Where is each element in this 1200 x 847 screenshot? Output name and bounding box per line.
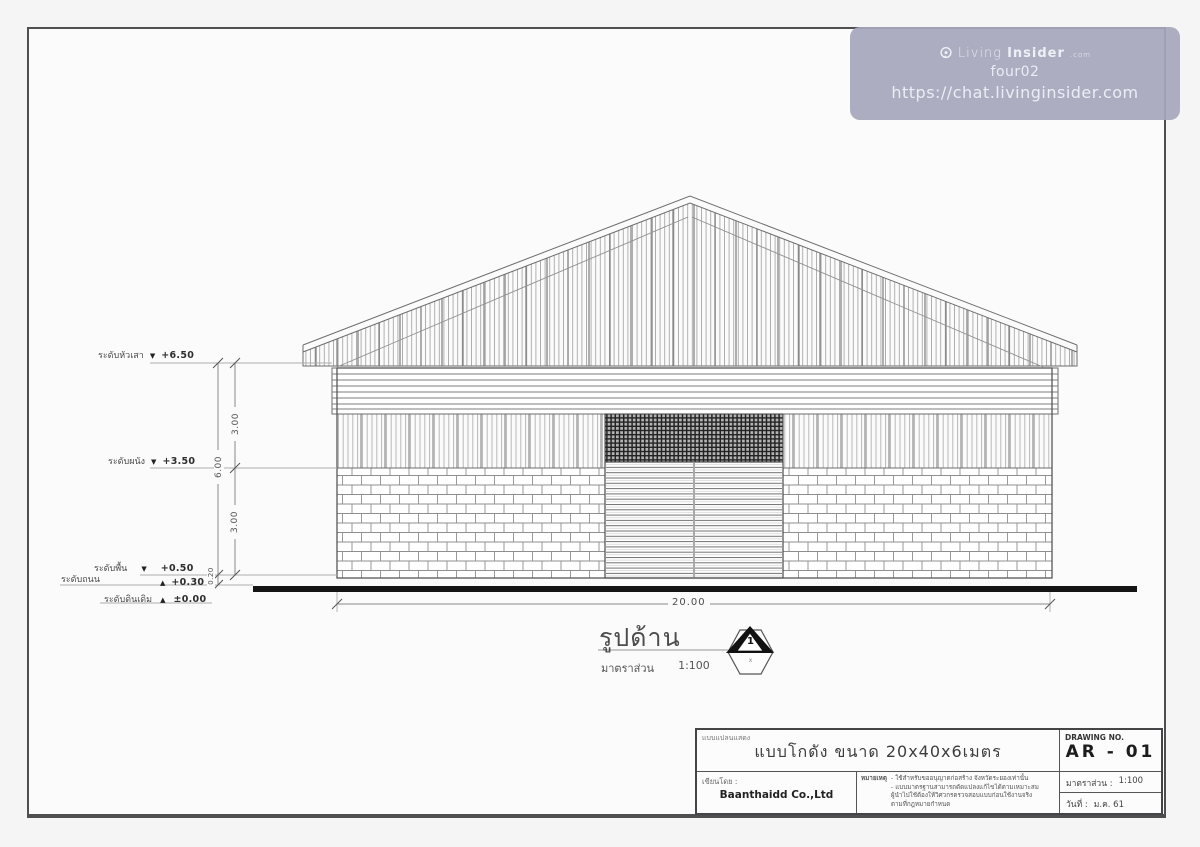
title-block: แบบแปลนแสดง แบบโกดัง ขนาด 20x40x6เมตร DR… <box>695 728 1163 815</box>
brand-prefix: Living <box>958 46 1002 61</box>
note-line: - แบบมาตรฐานสามารถดัดแปลงแก้ไขได้ตามเหมา… <box>891 784 1039 793</box>
note-line: ผู้นำไปใช้ต้องให้วิศวกรตรวจสอบแบบก่อนใช้… <box>891 792 1039 801</box>
level-marker-icon: ▲ <box>160 579 165 587</box>
dim-total-height: 6.00 <box>214 450 224 484</box>
title-block-date-cell: วันที่ : ม.ค. 61 <box>1060 793 1161 813</box>
level-value: +3.50 <box>162 456 195 467</box>
title-block-drawing-no-cell: DRAWING NO. AR - 01 <box>1060 730 1161 772</box>
title-block-notes-cell: หมายเหตุ - ใช้สำหรับขออนุญาตก่อสร้าง จัง… <box>857 772 1060 813</box>
elevation-marker-number: 1 <box>742 636 759 647</box>
elevation-marker-ref: x <box>744 657 757 664</box>
scale-value: 1:100 <box>678 659 710 677</box>
view-scale: มาตราส่วน 1:100 <box>601 659 710 677</box>
author-label: เขียนโดย : <box>702 776 737 788</box>
livinginsider-logo-icon <box>939 46 953 60</box>
scale-label: มาตราส่วน <box>601 659 654 677</box>
tb-date-value: ม.ค. 61 <box>1094 797 1124 811</box>
level-label-column-top: ระดับหัวเสา ▼ +6.50 <box>98 348 194 362</box>
level-marker-icon: ▼ <box>141 565 146 573</box>
brand-tld: .com <box>1070 51 1091 59</box>
level-label-ground: ระดับดินเดิม ▲ ±0.00 <box>104 592 206 606</box>
level-value-road: ▲ +0.30 <box>160 577 204 588</box>
dim-upper-height: 3.00 <box>231 407 241 441</box>
watermark-brand: Living Insider .com <box>939 46 1091 61</box>
title-block-scale-cell: มาตราส่วน : 1:100 <box>1060 772 1161 793</box>
drawing-no-label: DRAWING NO. <box>1065 733 1124 742</box>
project-title: แบบโกดัง ขนาด 20x40x6เมตร <box>697 740 1059 765</box>
title-block-author-cell: เขียนโดย : Baanthaidd Co.,Ltd <box>697 772 857 813</box>
drawing-sheet-page: ระดับหัวเสา ▼ +6.50 ระดับผนัง ▼ +3.50 ระ… <box>0 0 1200 847</box>
level-label-floor: ระดับพื้น ▼ +0.50 <box>94 561 194 575</box>
view-title: รูปด้าน <box>599 618 681 658</box>
author-name: Baanthaidd Co.,Ltd <box>697 789 856 801</box>
level-value: +0.50 <box>161 563 194 574</box>
tb-scale-value: 1:100 <box>1119 776 1144 790</box>
note-line: ตามที่กฎหมายกำหนด <box>891 801 1039 810</box>
sheet-border-frame <box>27 27 1166 818</box>
level-label-wall: ระดับผนัง ▼ +3.50 <box>108 454 195 468</box>
level-marker-icon: ▼ <box>150 352 155 360</box>
level-value: +6.50 <box>161 350 194 361</box>
brand-suffix: Insider <box>1007 46 1065 61</box>
level-value: ±0.00 <box>173 594 206 605</box>
drawing-no: AR - 01 <box>1060 742 1161 762</box>
watermark-url: https://chat.livinginsider.com <box>891 83 1138 102</box>
watermark-username: four02 <box>991 64 1040 80</box>
tb-date-label: วันที่ : <box>1066 797 1088 811</box>
dim-lower-height: 3.00 <box>230 505 240 539</box>
level-name: ระดับหัวเสา <box>98 348 144 362</box>
dim-building-width: 20.00 <box>668 597 710 608</box>
level-marker-icon: ▼ <box>151 458 156 466</box>
level-name: ระดับดินเดิม <box>104 592 152 606</box>
note-line: - ใช้สำหรับขออนุญาตก่อสร้าง จังหวัดระยอง… <box>891 775 1039 784</box>
level-name: ระดับผนัง <box>108 454 145 468</box>
notes-label: หมายเหตุ <box>861 775 887 809</box>
level-label-road: ระดับถนน <box>61 572 100 586</box>
dim-plinth-height: 0.20 <box>207 561 215 591</box>
level-value: +0.30 <box>171 577 204 588</box>
watermark: Living Insider .com four02 https://chat.… <box>850 27 1180 120</box>
notes-text: - ใช้สำหรับขออนุญาตก่อสร้าง จังหวัดระยอง… <box>891 775 1039 809</box>
level-name: ระดับถนน <box>61 572 100 586</box>
tb-scale-label: มาตราส่วน : <box>1066 776 1113 790</box>
level-marker-icon: ▲ <box>160 596 165 604</box>
title-block-project-cell: แบบแปลนแสดง แบบโกดัง ขนาด 20x40x6เมตร <box>697 730 1060 772</box>
